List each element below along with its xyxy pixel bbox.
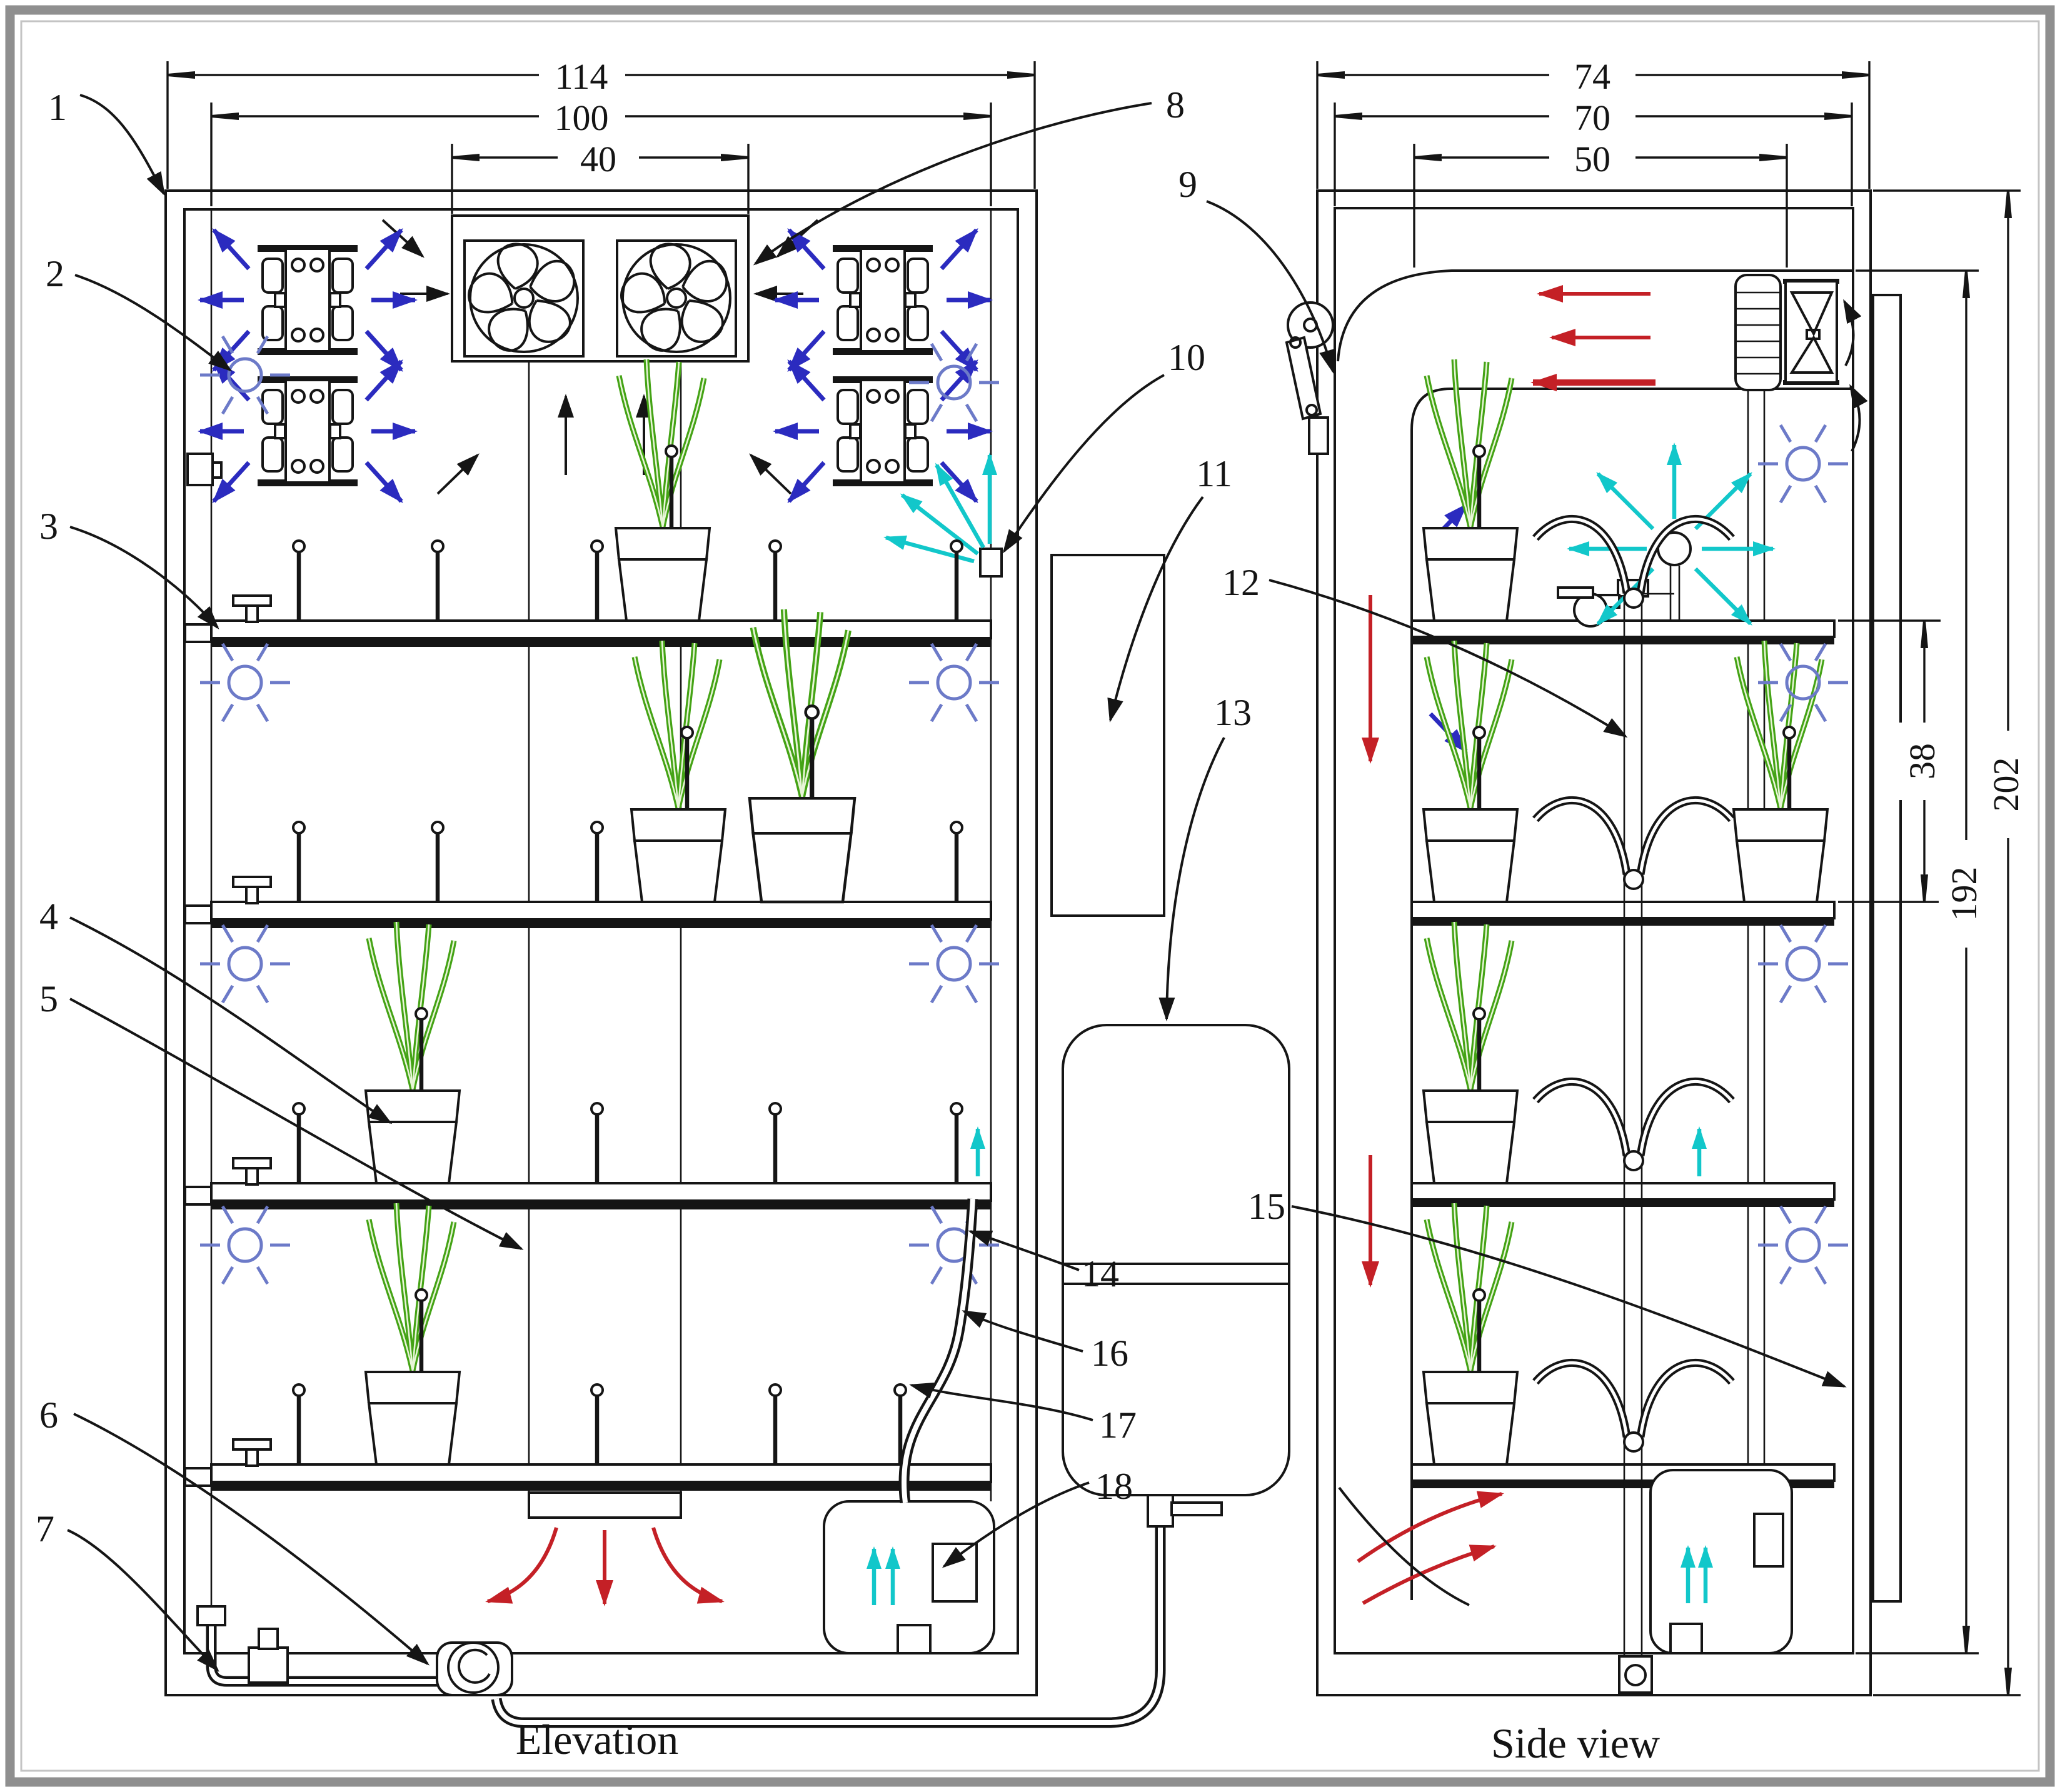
water-pump: [437, 1643, 512, 1695]
plant-tier3: [366, 922, 460, 1183]
plant-tier2-left: [631, 641, 725, 902]
callout-16: 16: [1091, 1333, 1128, 1374]
sv-water-sump: [1651, 1470, 1792, 1653]
leader-3: [70, 527, 218, 628]
water-sump: [824, 1501, 994, 1653]
supply-valve-4: [233, 1439, 271, 1466]
mist-unit-top-left: [200, 230, 415, 370]
sv-shelf-tier-1: [1412, 621, 1834, 644]
dimension-sv-plenum-width: 50: [1414, 139, 1787, 268]
shelf-tier-2: [185, 902, 991, 928]
caption-elevation: Elevation: [516, 1716, 679, 1763]
dim-114: 114: [555, 56, 608, 97]
shelf-tier-1: [185, 621, 991, 647]
fan-assembly: [452, 216, 748, 361]
air-diffuser: [529, 1493, 681, 1518]
plant-tier4: [366, 1203, 460, 1464]
leader-2: [75, 275, 230, 370]
leader-13: [1167, 738, 1224, 1019]
supply-valve-2: [233, 877, 271, 903]
callout-9: 9: [1178, 164, 1197, 205]
callout-3: 3: [39, 506, 58, 547]
mist-unit-top-right: [775, 230, 990, 370]
callout-12: 12: [1222, 562, 1260, 603]
airflow-curve: [1339, 1488, 1469, 1605]
callout-4: 4: [39, 896, 58, 937]
callout-14: 14: [1082, 1253, 1119, 1294]
side-view: 74 70 50: [1287, 56, 2026, 1695]
dimension-sv-inner-height: 192: [1856, 271, 1984, 1653]
growth-chamber-diagram: 114 100 40: [0, 0, 2060, 1792]
tank-outlet: [1148, 1495, 1173, 1526]
mist-unit-mid-left: [200, 361, 415, 501]
dim-192: 192: [1944, 867, 1984, 921]
airflow-arrow: [438, 455, 478, 494]
door-hinge: [1287, 303, 1333, 454]
callout-7: 7: [36, 1508, 54, 1549]
callout-8: 8: [1166, 84, 1185, 126]
dim-202: 202: [1986, 758, 2026, 812]
plant-tier2-right: [750, 609, 855, 902]
supply-valve-1: [233, 596, 271, 622]
callout-13: 13: [1214, 692, 1252, 733]
callout-2: 2: [46, 253, 64, 294]
callout-6: 6: [39, 1394, 58, 1436]
plant-tier1: [616, 359, 710, 621]
shelf-tier-3: [185, 1183, 991, 1209]
supply-valve-3: [233, 1158, 271, 1184]
leader-10: [1004, 375, 1164, 551]
callout-18: 18: [1095, 1466, 1133, 1507]
warm-air-right-arrow: [653, 1528, 722, 1601]
callout-10: 10: [1168, 337, 1205, 378]
door-latch: [188, 454, 213, 485]
callout-15: 15: [1248, 1186, 1285, 1227]
rear-door-panel: [1873, 295, 1901, 1601]
dimension-el-fan-width: 40: [452, 139, 748, 214]
callout-5: 5: [39, 978, 58, 1019]
callout-17: 17: [1099, 1404, 1137, 1446]
leader-1: [80, 95, 164, 194]
dim-38: 38: [1902, 743, 1942, 779]
control-box: [1052, 555, 1164, 916]
callout-1: 1: [48, 87, 67, 128]
sv-shelf-tier-3: [1412, 1183, 1834, 1207]
dim-100: 100: [555, 98, 609, 138]
airflow-arrow: [383, 220, 423, 256]
dim-50: 50: [1574, 139, 1610, 179]
drain-fitting: [249, 1648, 288, 1683]
sv-pump: [1619, 1656, 1652, 1693]
leader-8: [755, 103, 1152, 264]
air-louver: [1736, 275, 1781, 390]
return-air-arrow: [1363, 1546, 1494, 1603]
dim-40: 40: [580, 139, 616, 179]
airflow-arrow: [751, 455, 791, 494]
shelf-tier-4: [185, 1464, 991, 1491]
leader-4: [70, 918, 390, 1123]
side-fan: [1783, 279, 1839, 385]
sv-shelf-tier-2: [1412, 902, 1834, 926]
figure-canvas: 114 100 40: [0, 0, 2060, 1792]
callout-11: 11: [1196, 453, 1232, 494]
drain-outlet-cap: [198, 1606, 225, 1625]
warm-air-left-arrow: [488, 1528, 556, 1601]
drain-plumbing: [198, 1526, 1160, 1723]
mist-unit-mid-right: [775, 361, 990, 501]
leader-7: [68, 1530, 218, 1670]
door-latch-pin: [213, 463, 221, 478]
dim-74: 74: [1574, 56, 1610, 97]
dim-70: 70: [1574, 98, 1610, 138]
caption-side-view: Side view: [1491, 1719, 1660, 1767]
drip-tubes: [1535, 519, 1732, 1451]
sv-plant-tier1: [1424, 359, 1517, 621]
sv-plant-tier3: [1424, 922, 1517, 1183]
sv-plant-tier2-left: [1424, 641, 1517, 902]
